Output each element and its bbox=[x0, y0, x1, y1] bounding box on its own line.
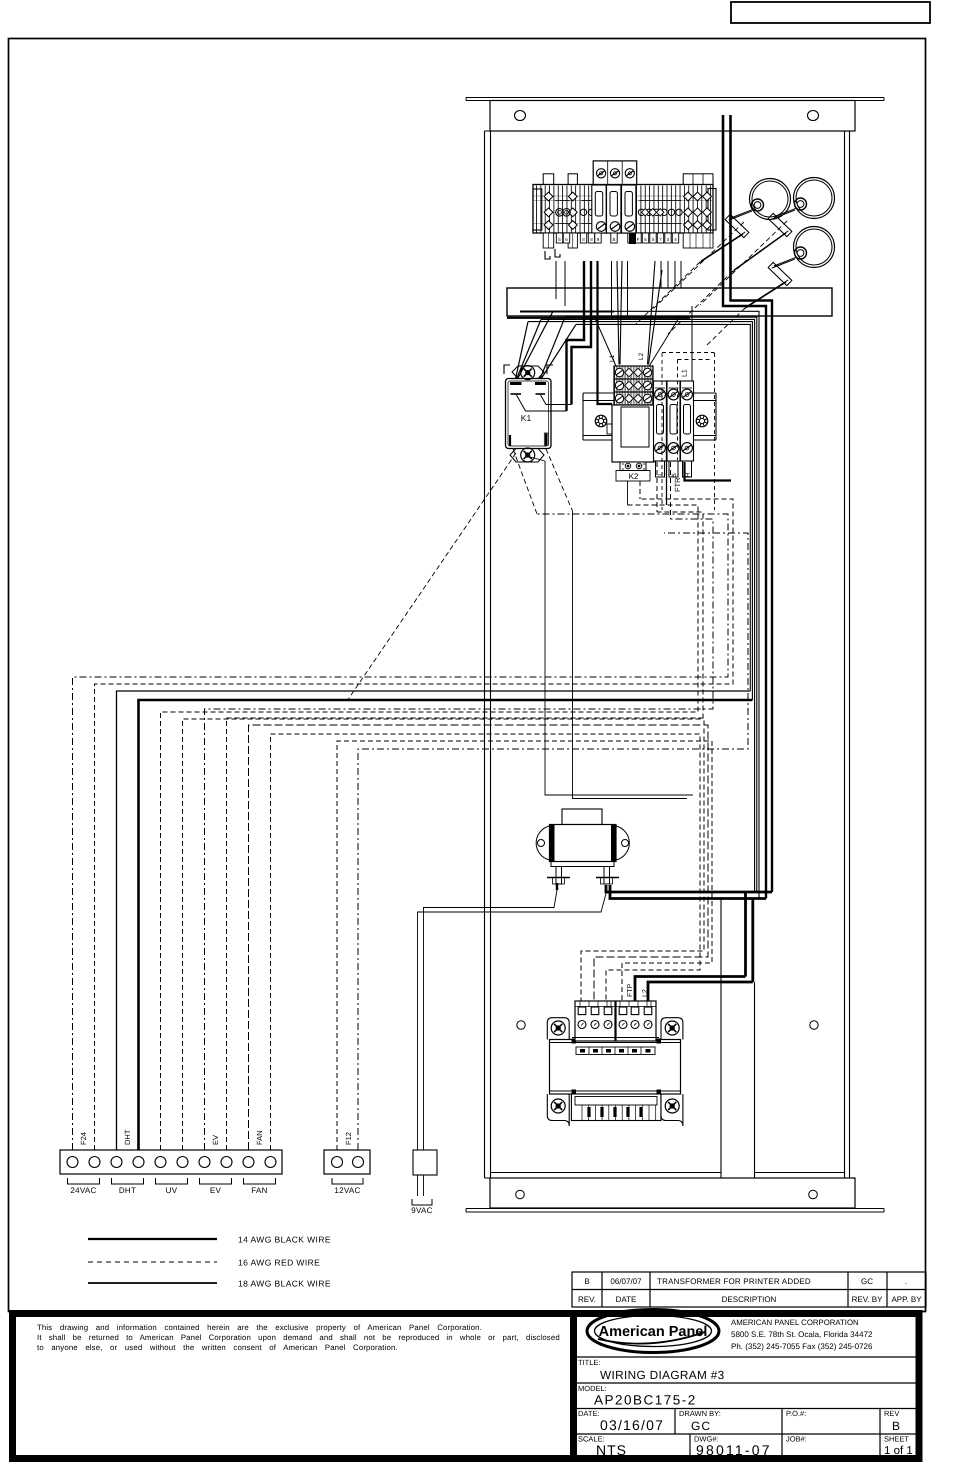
svg-text:P.O.#:: P.O.#: bbox=[786, 1409, 806, 1418]
svg-text:L1: L1 bbox=[682, 369, 689, 377]
svg-text:03/16/07: 03/16/07 bbox=[600, 1417, 664, 1433]
svg-text:REV: REV bbox=[884, 1409, 899, 1418]
svg-text:DATE: DATE bbox=[616, 1295, 637, 1304]
svg-text:This drawing and information c: This drawing and information contained h… bbox=[37, 1323, 482, 1332]
svg-text:Ph. (352) 245-7055 Fax (352): Ph. (352) 245-7055 Fax (352) 245-0726 bbox=[731, 1342, 873, 1351]
svg-text:GC: GC bbox=[861, 1277, 873, 1286]
svg-text:to anyone else, or used withou: to anyone else, or used without the writ… bbox=[37, 1343, 398, 1352]
svg-text:06/07/07: 06/07/07 bbox=[610, 1277, 642, 1286]
svg-text:DATE:: DATE: bbox=[578, 1409, 600, 1418]
svg-text:FAN: FAN bbox=[251, 1186, 267, 1195]
svg-text:F12: F12 bbox=[344, 1132, 353, 1145]
svg-text:APP. BY: APP. BY bbox=[891, 1295, 922, 1304]
svg-text:B: B bbox=[892, 1419, 900, 1433]
svg-text:NTS: NTS bbox=[596, 1442, 627, 1458]
svg-text:24VAC: 24VAC bbox=[70, 1186, 96, 1195]
svg-text:TRANSFORMER FOR PRINTER ADDED: TRANSFORMER FOR PRINTER ADDED bbox=[657, 1277, 811, 1286]
svg-text:F24: F24 bbox=[79, 1132, 88, 1145]
svg-text:9VAC: 9VAC bbox=[411, 1206, 433, 1215]
svg-text:1 of 1: 1 of 1 bbox=[884, 1445, 913, 1457]
svg-text:DHT: DHT bbox=[119, 1186, 136, 1195]
svg-text:5800 S.E. 78th St. Ocala, Flor: 5800 S.E. 78th St. Ocala, Florida 34472 bbox=[731, 1330, 873, 1339]
svg-text:SHEET: SHEET bbox=[884, 1435, 909, 1444]
svg-text:FTP: FTP bbox=[627, 983, 634, 997]
svg-text:FTR: FTR bbox=[673, 477, 682, 492]
svg-text:.: . bbox=[905, 1277, 907, 1286]
svg-text:16 AWG RED WIRE: 16 AWG RED WIRE bbox=[238, 1258, 320, 1268]
svg-text:AP20BC175-2: AP20BC175-2 bbox=[594, 1393, 697, 1408]
svg-text:REV. BY: REV. BY bbox=[852, 1295, 883, 1304]
svg-text:EV: EV bbox=[211, 1135, 220, 1145]
svg-text:AMERICAN PANEL CORPORATION: AMERICAN PANEL CORPORATION bbox=[731, 1318, 859, 1327]
svg-text:FAN: FAN bbox=[255, 1130, 264, 1145]
svg-text:DRAWN BY:: DRAWN BY: bbox=[679, 1409, 721, 1418]
svg-text:L2: L2 bbox=[638, 352, 645, 360]
svg-text:98011-07: 98011-07 bbox=[696, 1442, 772, 1458]
svg-text:14 AWG BLACK WIRE: 14 AWG BLACK WIRE bbox=[238, 1235, 331, 1245]
svg-text:GC: GC bbox=[691, 1419, 711, 1433]
svg-text:TITLE:: TITLE: bbox=[578, 1358, 601, 1367]
svg-text:B: B bbox=[612, 237, 615, 242]
svg-text:F: F bbox=[637, 237, 640, 242]
svg-text:It shall be returned to Americ: It shall be returned to American Panel C… bbox=[37, 1333, 560, 1342]
svg-text:K1: K1 bbox=[521, 413, 532, 423]
svg-text:JOB#:: JOB#: bbox=[786, 1435, 807, 1444]
svg-text:WIRING DIAGRAM #3: WIRING DIAGRAM #3 bbox=[600, 1368, 725, 1382]
svg-text:EV: EV bbox=[210, 1186, 222, 1195]
svg-text:B: B bbox=[584, 1277, 589, 1286]
svg-text:American Panel: American Panel bbox=[599, 1324, 708, 1340]
svg-text:REV.: REV. bbox=[578, 1295, 596, 1304]
svg-text:UV: UV bbox=[166, 1186, 178, 1195]
svg-text:DHT: DHT bbox=[123, 1129, 132, 1145]
svg-text:18 AWG BLACK WIRE: 18 AWG BLACK WIRE bbox=[238, 1279, 331, 1289]
svg-text:DESCRIPTION: DESCRIPTION bbox=[722, 1295, 777, 1304]
svg-text:L1: L1 bbox=[609, 354, 616, 362]
svg-text:K2: K2 bbox=[629, 472, 639, 481]
svg-text:12VAC: 12VAC bbox=[334, 1186, 360, 1195]
